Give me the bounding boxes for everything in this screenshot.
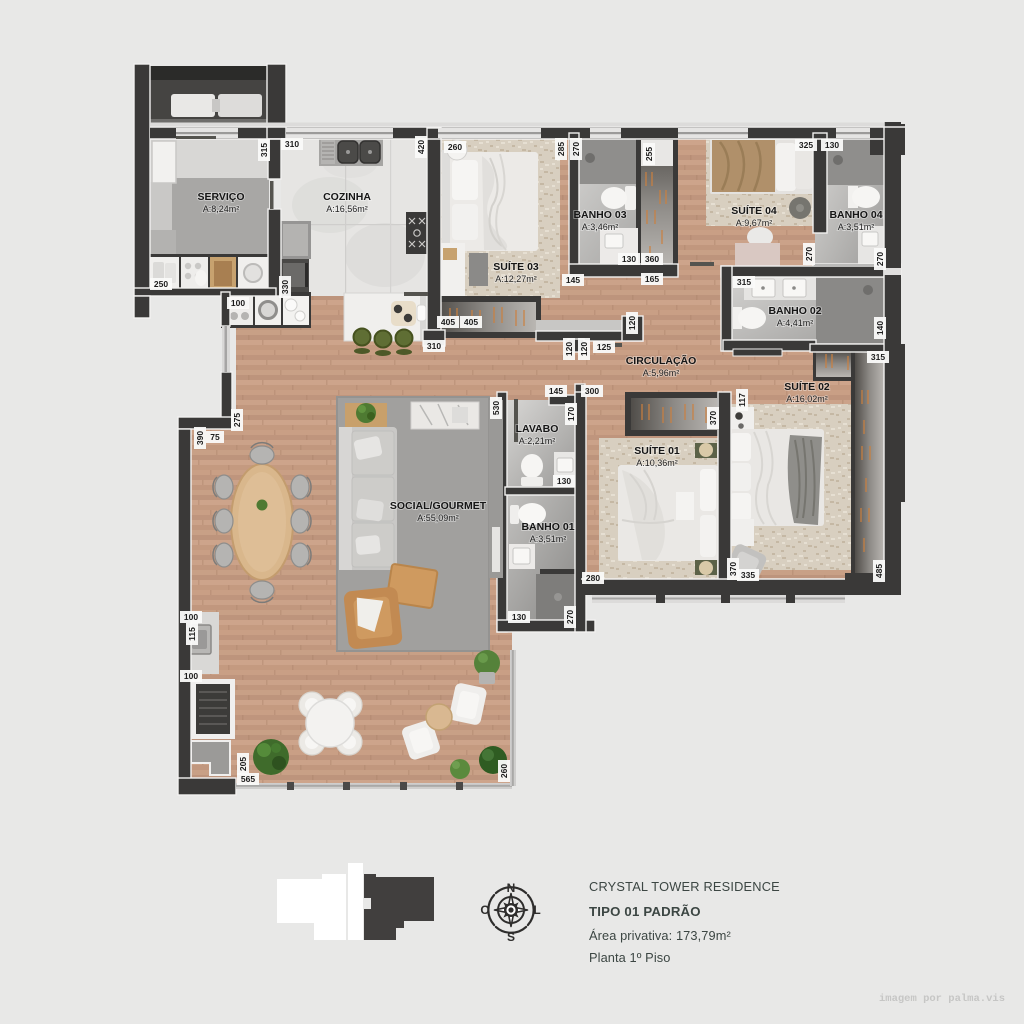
svg-text:100: 100 <box>231 298 245 308</box>
svg-text:BANHO 03: BANHO 03 <box>573 209 626 221</box>
svg-text:370: 370 <box>708 411 718 425</box>
svg-text:205: 205 <box>238 757 248 771</box>
svg-text:A:12,27m²: A:12,27m² <box>495 274 537 284</box>
svg-text:S: S <box>507 930 515 944</box>
svg-text:130: 130 <box>825 140 839 150</box>
svg-text:130: 130 <box>557 476 571 486</box>
svg-text:315: 315 <box>871 352 885 362</box>
svg-text:260: 260 <box>448 142 462 152</box>
svg-text:SUÍTE 03: SUÍTE 03 <box>493 260 539 273</box>
svg-text:A:8,24m²: A:8,24m² <box>203 204 240 214</box>
svg-text:COZINHA: COZINHA <box>323 191 371 203</box>
svg-text:SUÍTE 02: SUÍTE 02 <box>784 380 830 393</box>
svg-text:145: 145 <box>566 275 580 285</box>
svg-text:Área privativa: 173,79m²: Área privativa: 173,79m² <box>589 928 731 943</box>
svg-text:310: 310 <box>427 341 441 351</box>
svg-text:CIRCULAÇÃO: CIRCULAÇÃO <box>626 354 697 367</box>
svg-text:280: 280 <box>586 573 600 583</box>
svg-text:370: 370 <box>728 562 738 576</box>
svg-text:285: 285 <box>556 142 566 156</box>
svg-text:O: O <box>480 903 489 917</box>
svg-text:SUÍTE 04: SUÍTE 04 <box>731 204 777 217</box>
svg-text:130: 130 <box>622 254 636 264</box>
svg-text:145: 145 <box>549 386 563 396</box>
svg-text:A:16,02m²: A:16,02m² <box>786 394 828 404</box>
svg-text:100: 100 <box>184 612 198 622</box>
svg-text:SUÍTE 01: SUÍTE 01 <box>634 444 680 457</box>
svg-text:170: 170 <box>566 407 576 421</box>
svg-text:130: 130 <box>512 612 526 622</box>
svg-text:360: 360 <box>645 254 659 264</box>
svg-text:117: 117 <box>737 393 747 407</box>
svg-text:BANHO 04: BANHO 04 <box>829 209 882 221</box>
svg-text:330: 330 <box>280 280 290 294</box>
svg-text:A:3,51m²: A:3,51m² <box>530 534 567 544</box>
svg-text:120: 120 <box>579 342 589 356</box>
svg-text:270: 270 <box>804 247 814 261</box>
svg-text:TIPO 01 PADRÃO: TIPO 01 PADRÃO <box>589 904 701 919</box>
svg-text:270: 270 <box>565 610 575 624</box>
svg-text:260: 260 <box>499 764 509 778</box>
svg-text:565: 565 <box>241 774 255 784</box>
svg-text:A:10,36m²: A:10,36m² <box>636 458 678 468</box>
svg-text:310: 310 <box>285 139 299 149</box>
svg-text:255: 255 <box>644 147 654 161</box>
svg-text:120: 120 <box>627 316 637 330</box>
svg-text:420: 420 <box>416 140 426 154</box>
svg-text:A:4,41m²: A:4,41m² <box>777 318 814 328</box>
svg-text:BANHO 02: BANHO 02 <box>768 305 821 317</box>
svg-text:315: 315 <box>259 143 269 157</box>
svg-text:Planta 1º Piso: Planta 1º Piso <box>589 950 670 965</box>
svg-text:A:3,51m²: A:3,51m² <box>838 222 875 232</box>
svg-text:A:5,96m²: A:5,96m² <box>643 368 680 378</box>
svg-text:125: 125 <box>597 342 611 352</box>
svg-text:A:55,09m²: A:55,09m² <box>417 513 459 523</box>
svg-text:imagem por palma.vis: imagem por palma.vis <box>879 993 1005 1005</box>
svg-text:250: 250 <box>154 279 168 289</box>
svg-text:75: 75 <box>210 432 220 442</box>
svg-text:325: 325 <box>799 140 813 150</box>
svg-text:100: 100 <box>184 671 198 681</box>
svg-text:120: 120 <box>564 342 574 356</box>
svg-text:CRYSTAL TOWER RESIDENCE: CRYSTAL TOWER RESIDENCE <box>589 879 780 894</box>
svg-text:LAVABO: LAVABO <box>516 423 559 435</box>
svg-text:165: 165 <box>645 274 659 284</box>
svg-text:530: 530 <box>491 401 501 415</box>
svg-text:A:9,67m²: A:9,67m² <box>736 218 773 228</box>
svg-text:BANHO 01: BANHO 01 <box>521 521 574 533</box>
svg-text:A:16,56m²: A:16,56m² <box>326 204 368 214</box>
svg-text:SERVIÇO: SERVIÇO <box>197 191 244 203</box>
svg-text:335: 335 <box>741 570 755 580</box>
svg-text:A:2,21m²: A:2,21m² <box>519 436 556 446</box>
svg-text:300: 300 <box>585 386 599 396</box>
svg-text:390: 390 <box>195 431 205 445</box>
svg-text:140: 140 <box>875 321 885 335</box>
svg-text:315: 315 <box>737 277 751 287</box>
svg-text:115: 115 <box>187 627 197 641</box>
svg-text:270: 270 <box>571 142 581 156</box>
svg-text:L: L <box>533 903 540 917</box>
svg-text:A:3,46m²: A:3,46m² <box>582 222 619 232</box>
svg-text:SOCIAL/GOURMET: SOCIAL/GOURMET <box>390 500 487 512</box>
svg-text:275: 275 <box>232 413 242 427</box>
svg-text:485: 485 <box>874 564 884 578</box>
svg-text:405: 405 <box>441 317 455 327</box>
svg-text:405: 405 <box>464 317 478 327</box>
svg-text:N: N <box>507 881 516 895</box>
svg-text:270: 270 <box>875 252 885 266</box>
